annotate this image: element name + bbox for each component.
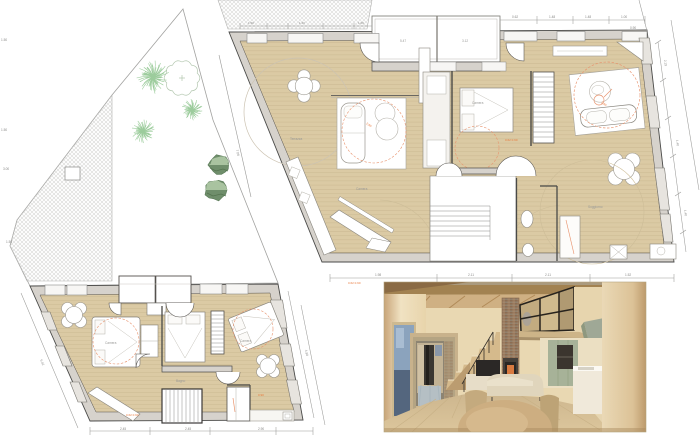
svg-text:1.00: 1.00 [358,21,364,25]
svg-text:0.90: 0.90 [630,26,636,30]
svg-text:1.48: 1.48 [585,15,591,19]
svg-text:0.62: 0.62 [512,15,518,19]
svg-text:1.50: 1.50 [6,240,12,244]
svg-text:0.62 0.90: 0.62 0.90 [126,413,139,417]
svg-text:2.11: 2.11 [468,273,474,277]
svg-text:Terrazza: Terrazza [290,137,302,141]
svg-text:Camera: Camera [356,187,368,191]
svg-text:3.00: 3.00 [3,167,9,171]
svg-text:Bagno: Bagno [176,379,185,383]
svg-text:Camera: Camera [472,101,484,105]
svg-text:1.52: 1.52 [625,273,631,277]
svg-text:Soggiorno: Soggiorno [588,205,603,209]
svg-text:1.50: 1.50 [248,21,254,25]
svg-text:1.50: 1.50 [1,38,7,42]
svg-text:0.90: 0.90 [258,393,264,397]
svg-text:3.12: 3.12 [462,39,468,43]
svg-text:0.62 0.90: 0.62 0.90 [505,138,518,142]
svg-text:1.00: 1.00 [621,15,627,19]
svg-text:2.45: 2.45 [185,427,191,431]
svg-text:0.62 0.90: 0.62 0.90 [348,281,361,285]
svg-text:1.98: 1.98 [375,273,381,277]
svg-text:1.40: 1.40 [299,21,305,25]
svg-text:2.11: 2.11 [545,273,551,277]
svg-text:1.48: 1.48 [549,15,555,19]
svg-text:5.47: 5.47 [400,39,406,43]
svg-text:1.50: 1.50 [1,128,7,132]
svg-text:2.45: 2.45 [120,427,126,431]
svg-text:Camera: Camera [240,339,252,343]
svg-text:2.90: 2.90 [258,427,264,431]
svg-text:Camera: Camera [105,341,117,345]
